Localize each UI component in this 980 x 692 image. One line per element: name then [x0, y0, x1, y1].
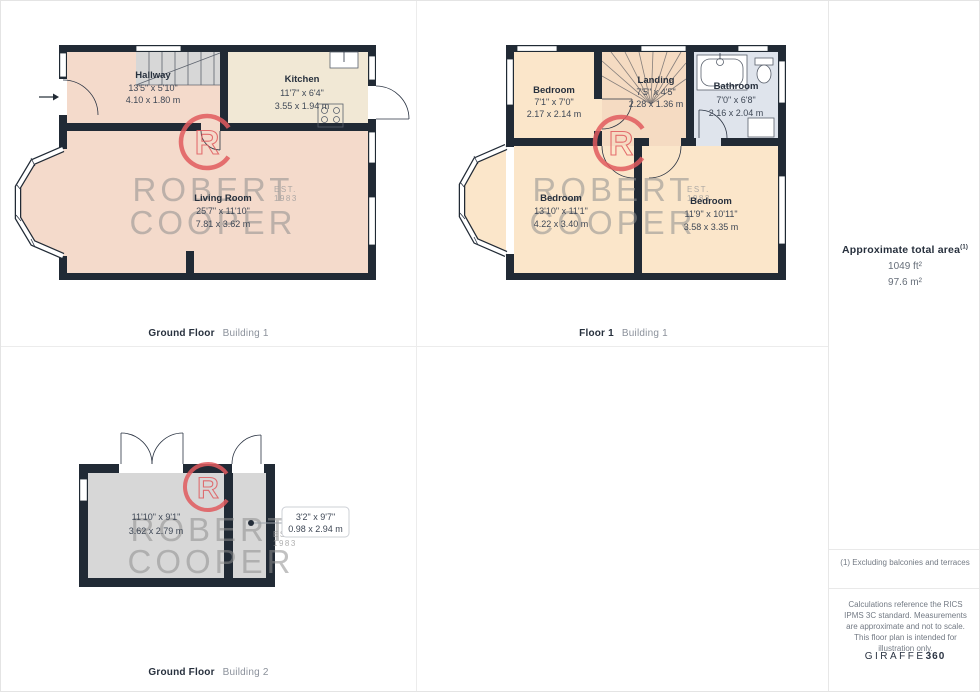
room-dimensions-metric: 3.55 x 1.94 m: [275, 101, 330, 111]
sidebar-divider: [829, 588, 980, 589]
room-dimensions-imperial: 13'10" x 11'1": [534, 206, 588, 216]
room-dimensions-imperial: 7'5" x 4'5": [636, 87, 675, 97]
floor-label: Ground Floor: [148, 328, 214, 339]
info-sidebar: Approximate total area(1) 1049 ft² 97.6 …: [828, 1, 980, 692]
caption-plan-2: Floor 1Building 1: [416, 328, 831, 339]
windows: [80, 479, 87, 501]
floorplan-ground-floor-building-1: R ROBERT COOPER EST. 1983 Hallway 13'5" …: [1, 1, 416, 323]
callout-metric: 0.98 x 2.94 m: [288, 524, 343, 534]
building-label: Building 1: [223, 328, 269, 339]
watermark-est: EST.: [274, 185, 297, 194]
room-name: Bedroom: [533, 85, 575, 96]
brand-logo: GIRAFFE360: [829, 651, 980, 662]
footnote: (1) Excluding balconies and terraces: [829, 558, 980, 567]
room-name: Landing: [638, 75, 675, 86]
window: [369, 132, 376, 163]
room-name: Kitchen: [285, 74, 320, 85]
room-dimensions-metric: 2.17 x 2.14 m: [527, 109, 582, 119]
room-dimensions-metric: 7.81 x 3.62 m: [196, 219, 251, 229]
floor-label: Floor 1: [579, 328, 614, 339]
door-arc: [376, 86, 409, 119]
single-door: [232, 435, 261, 464]
watermark-est: EST.: [687, 185, 710, 194]
window: [369, 197, 376, 245]
room-dimensions-imperial: 7'1" x 7'0": [534, 97, 573, 107]
room-dimensions-imperial: 11'10" x 9'1": [132, 512, 181, 522]
room-dimensions-metric: 3.62 x 2.79 m: [129, 526, 184, 536]
watermark-logo-letter: R: [197, 472, 219, 505]
room-dimensions-imperial: 11'9" x 10'11": [684, 209, 737, 219]
total-area-m: 97.6 m²: [829, 277, 980, 288]
watermark-year: 1983: [274, 194, 298, 203]
window: [80, 479, 87, 501]
window: [507, 59, 513, 105]
room-name: Bedroom: [690, 196, 732, 207]
room-dimensions-metric: 4.10 x 1.80 m: [126, 95, 181, 105]
window: [517, 46, 557, 52]
entrance-arrow: [39, 94, 59, 101]
room-name: Living Room: [194, 193, 252, 204]
window: [779, 176, 785, 244]
room-name: Bathroom: [714, 81, 759, 92]
total-area-ft: 1049 ft²: [829, 261, 980, 272]
floor-label: Ground Floor: [148, 667, 214, 678]
total-area-block: Approximate total area(1) 1049 ft² 97.6 …: [829, 244, 980, 288]
total-area-superscript: (1): [960, 245, 968, 251]
watermark-year: 1983: [273, 539, 297, 548]
building-label: Building 1: [622, 328, 668, 339]
caption-plan-3: Ground FloorBuilding 2: [1, 667, 416, 678]
brand-number: 360: [926, 651, 946, 662]
brand-name: GIRAFFE: [865, 651, 926, 662]
caption-plan-1: Ground FloorBuilding 1: [1, 328, 416, 339]
window: [60, 53, 67, 77]
floorplan-ground-floor-building-2: R ROBERT COOPER EST. 1983 11'10" x 9'1" …: [1, 346, 416, 692]
watermark-logo-letter: R: [609, 125, 634, 163]
room-name: Hallway: [135, 70, 171, 81]
building-label: Building 2: [223, 667, 269, 678]
sink-icon: [748, 118, 774, 137]
total-area-title-text: Approximate total area: [842, 244, 960, 256]
room-dimensions-imperial: 7'0" x 6'8": [716, 95, 755, 105]
watermark-line2: COOPER: [127, 543, 294, 580]
watermark-logo-letter: R: [195, 124, 220, 162]
room-name: Bedroom: [540, 193, 582, 204]
room-dimensions-metric: 2.16 x 2.04 m: [709, 108, 764, 118]
room-dimensions-imperial: 25'7" x 11'10": [196, 206, 250, 216]
window: [779, 61, 785, 103]
room-dimensions-imperial: 11'7" x 6'4": [280, 88, 324, 98]
room-dimensions-metric: 2.28 x 1.36 m: [629, 99, 684, 109]
callout-imperial: 3'2" x 9'7": [296, 512, 335, 522]
room-dimensions-metric: 4.22 x 3.40 m: [534, 219, 589, 229]
window: [738, 46, 768, 52]
room-dimensions-imperial: 13'5" x 5'10": [128, 83, 177, 93]
disclaimer: Calculations reference the RICS IPMS 3C …: [840, 599, 971, 654]
total-area-title: Approximate total area(1): [829, 244, 980, 256]
window: [136, 46, 181, 52]
floorplan-page: R ROBERT COOPER EST. 1983 Hallway 13'5" …: [0, 0, 980, 692]
callout-dot: [248, 520, 254, 526]
window: [369, 56, 376, 80]
room-dimensions-metric: 3.58 x 3.35 m: [684, 222, 739, 232]
window: [641, 46, 686, 52]
double-door: [121, 433, 183, 464]
floorplan-floor-1-building-1: R ROBERT COOPER EST. 1983 Bedroom 7'1" x…: [416, 1, 831, 323]
sidebar-divider: [829, 549, 980, 550]
